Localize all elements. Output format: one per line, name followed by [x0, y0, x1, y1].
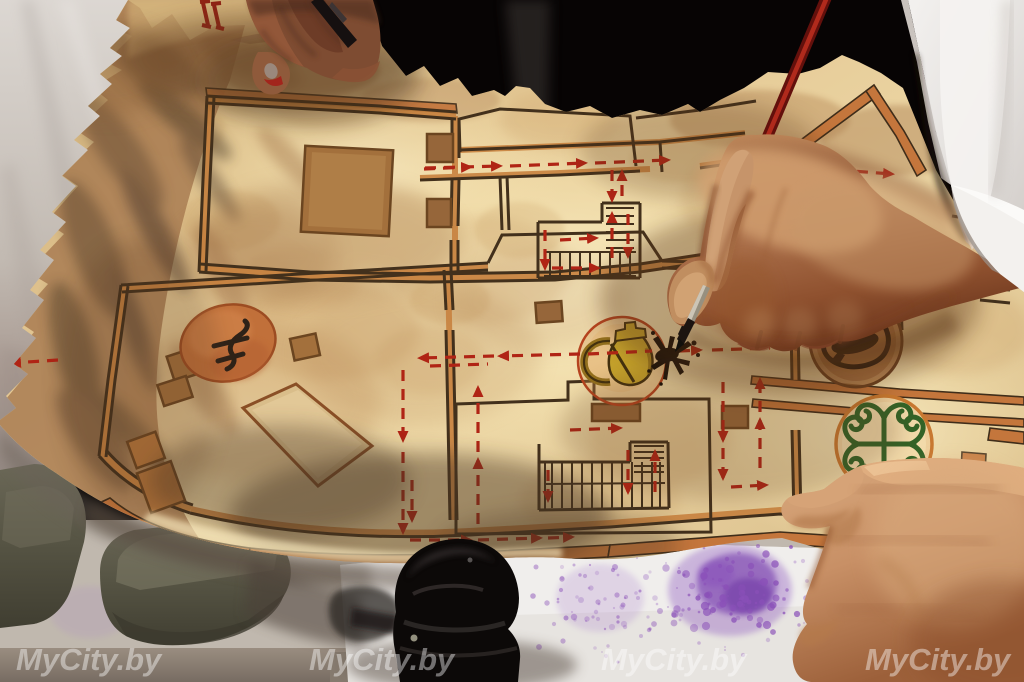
svg-text:MyCity.by: MyCity.by — [601, 642, 748, 677]
svg-text:MyCity.by: MyCity.by — [309, 642, 456, 677]
svg-text:MyCity.by: MyCity.by — [865, 642, 1012, 677]
svg-text:MyCity.by: MyCity.by — [16, 642, 163, 677]
